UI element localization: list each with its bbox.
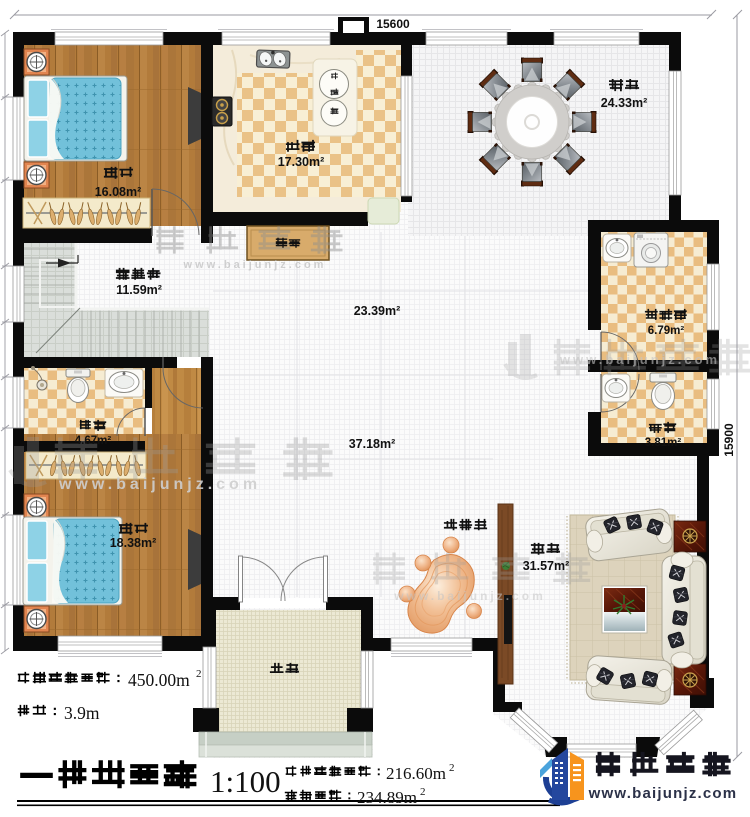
svg-text:4.67m²: 4.67m² [75,435,112,447]
svg-text:www.baijunjz.com: www.baijunjz.com [183,259,327,271]
svg-text:18.38m²: 18.38m² [110,536,157,550]
svg-text:216.60m: 216.60m [386,764,446,783]
svg-text:1:100: 1:100 [210,764,281,799]
svg-text:37.18m²: 37.18m² [349,437,396,451]
svg-text:www.baijunjz.com: www.baijunjz.com [58,476,261,493]
svg-text:23.39m²: 23.39m² [354,304,401,318]
svg-text:11.59m²: 11.59m² [116,283,162,297]
svg-text:www.baijunjz.com: www.baijunjz.com [393,589,546,603]
svg-text:www.baijunjz.com: www.baijunjz.com [559,352,720,367]
svg-text:24.33m²: 24.33m² [601,96,648,110]
svg-text:234.89m: 234.89m [357,788,417,807]
svg-text:17.30m²: 17.30m² [278,155,325,169]
svg-text:2: 2 [449,762,455,774]
svg-text:2: 2 [196,668,202,680]
svg-text:16.08m²: 16.08m² [95,185,142,199]
svg-text:15600: 15600 [376,17,410,31]
svg-text:www.baijunjz.com: www.baijunjz.com [588,785,738,802]
svg-text:15900: 15900 [722,423,736,457]
svg-text:2: 2 [420,786,426,798]
svg-text:3.9m: 3.9m [64,703,100,723]
svg-text:3.81m²: 3.81m² [645,437,682,449]
svg-text:450.00m: 450.00m [128,670,190,690]
svg-text:31.57m²: 31.57m² [523,559,570,573]
svg-text:6.79m²: 6.79m² [648,325,685,337]
